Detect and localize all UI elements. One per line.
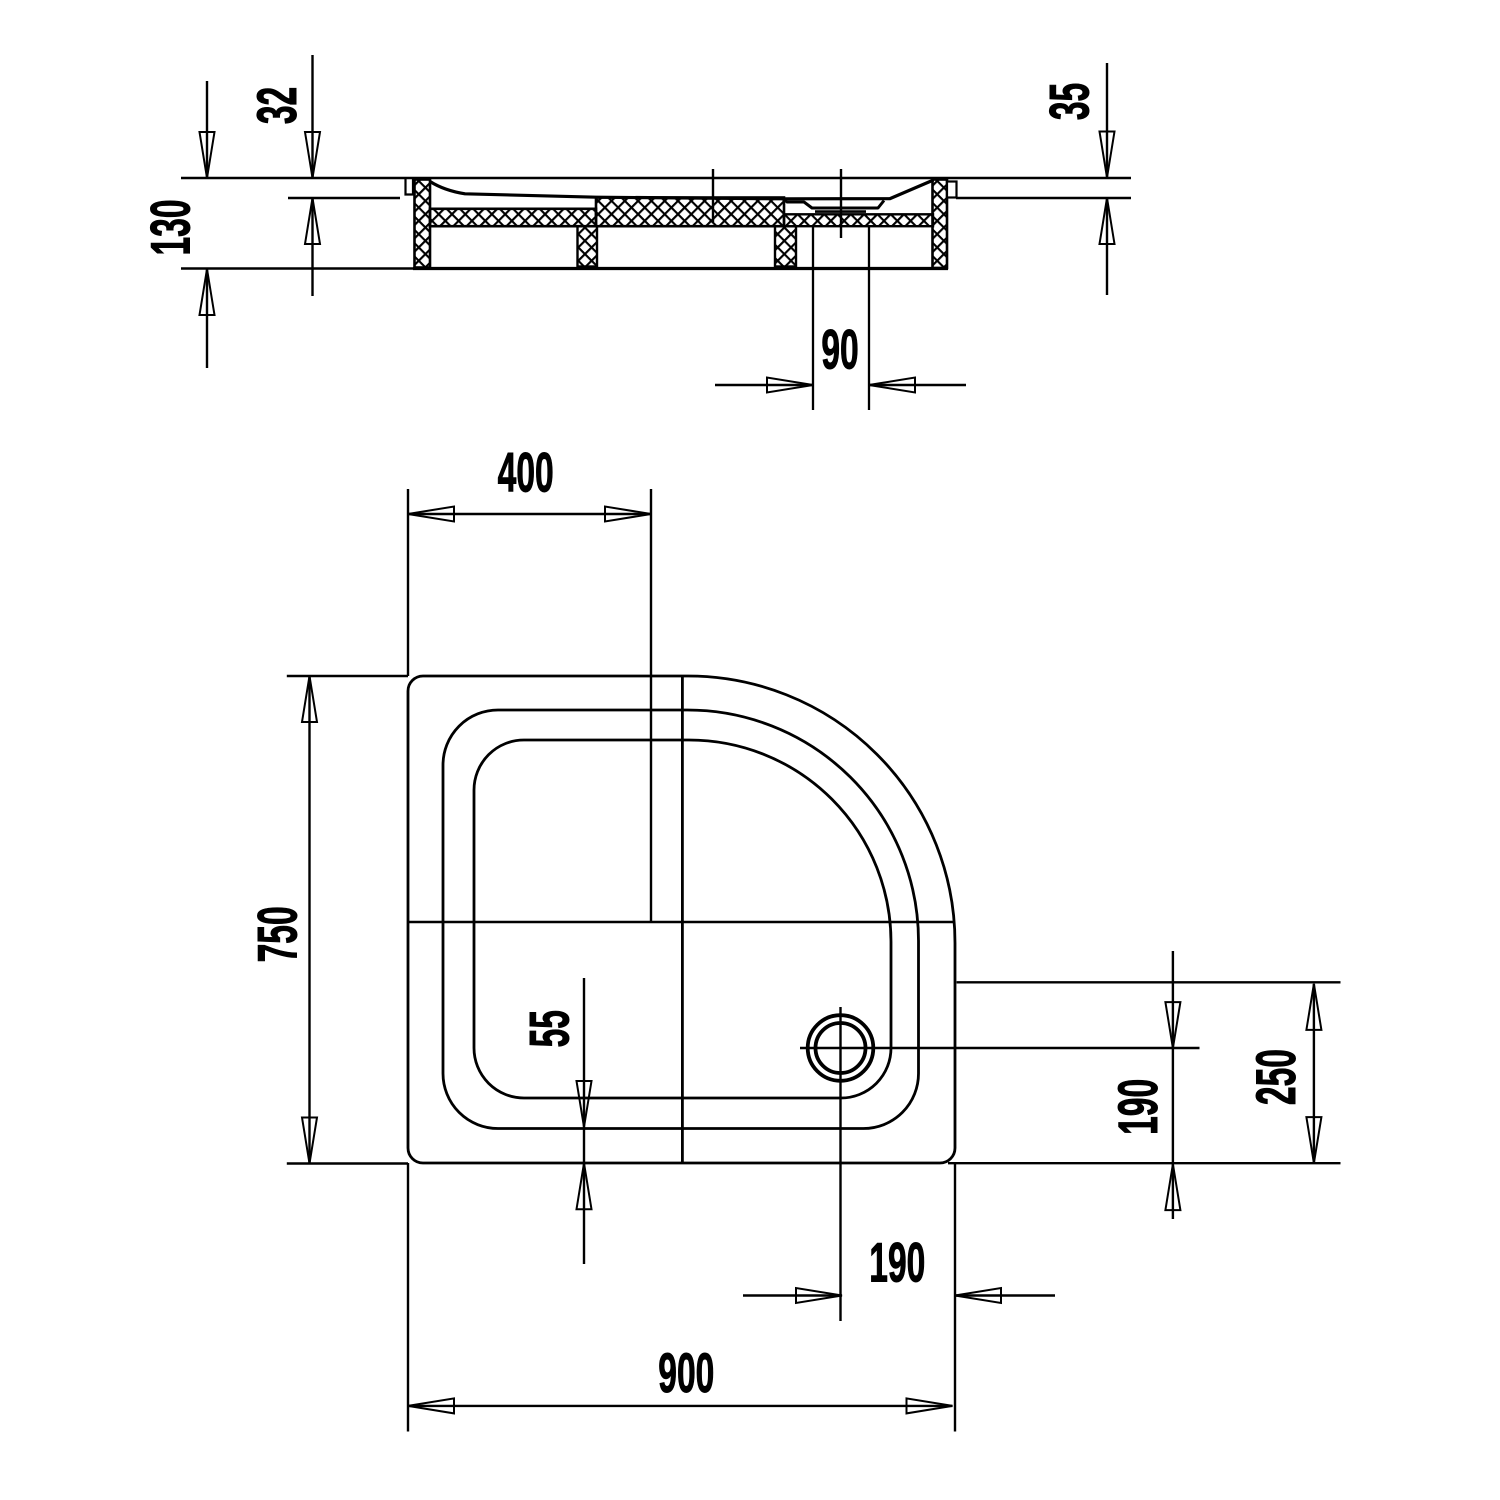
svg-text:900: 900 [658, 1341, 714, 1404]
svg-text:750: 750 [245, 906, 308, 962]
svg-text:400: 400 [498, 441, 554, 504]
svg-text:190: 190 [869, 1231, 925, 1294]
svg-text:250: 250 [1244, 1049, 1307, 1105]
svg-text:35: 35 [1038, 83, 1101, 120]
svg-text:32: 32 [245, 87, 308, 124]
svg-text:55: 55 [517, 1010, 580, 1047]
svg-text:130: 130 [139, 199, 202, 255]
svg-text:90: 90 [821, 318, 858, 381]
svg-text:190: 190 [1106, 1079, 1169, 1135]
